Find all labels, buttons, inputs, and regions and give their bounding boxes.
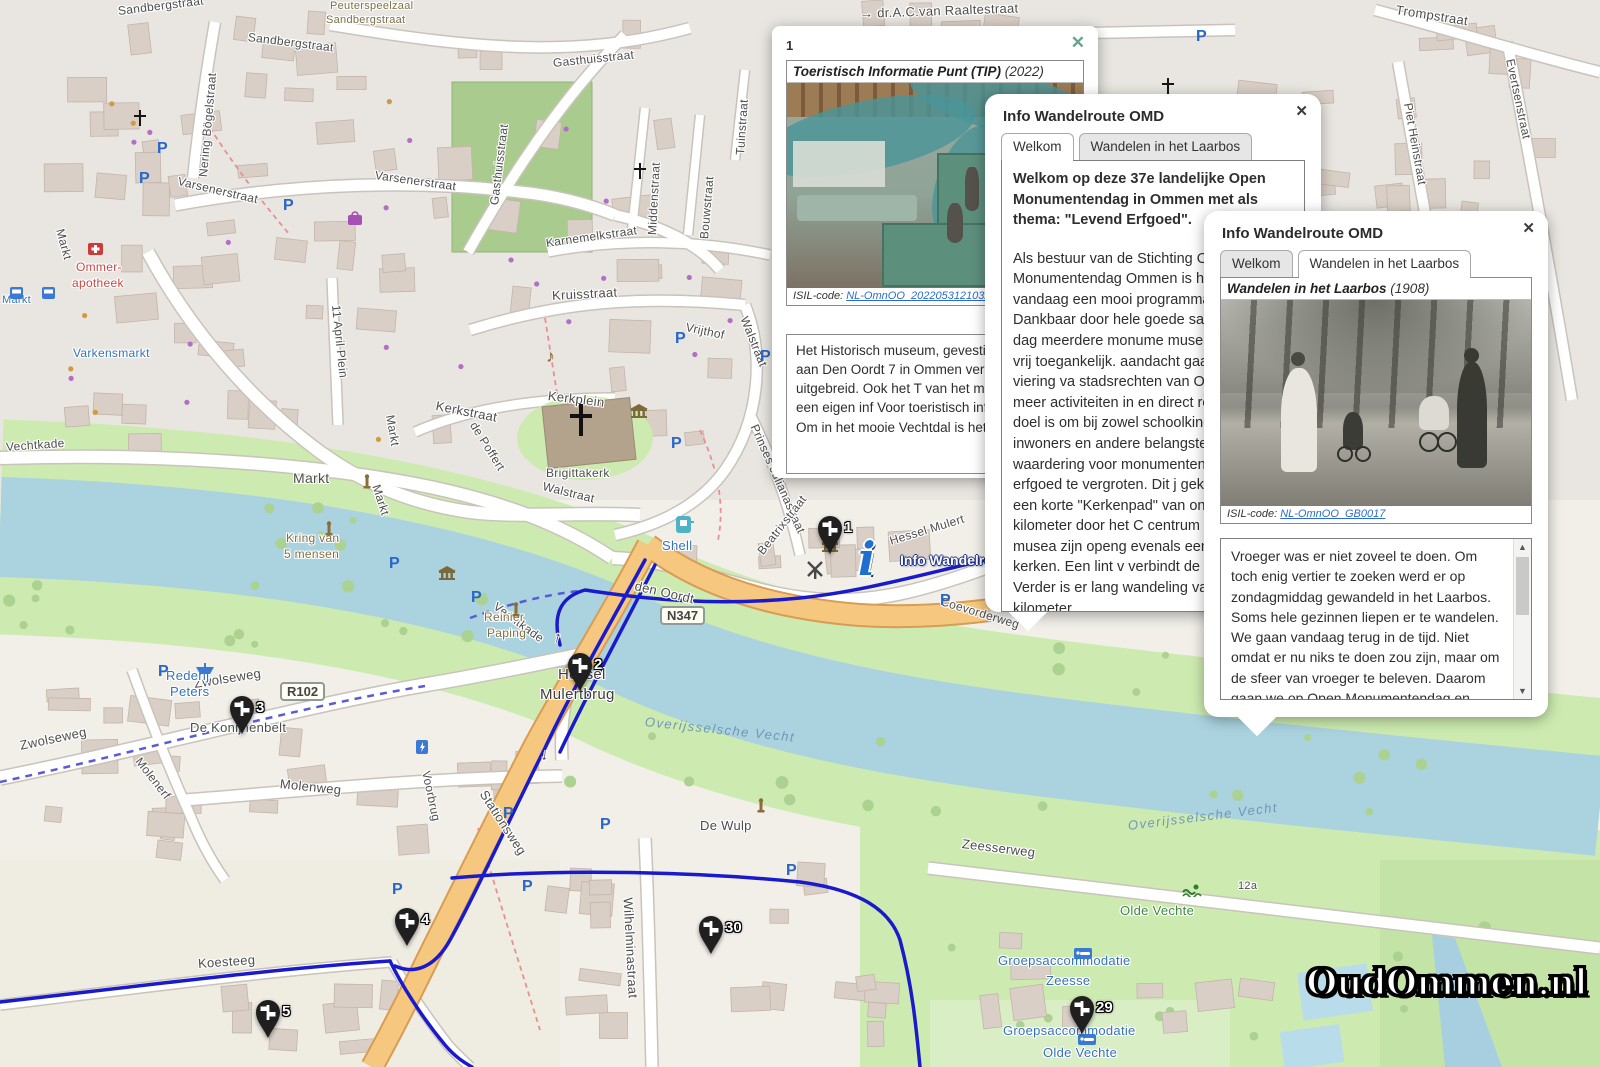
tab-bar: Welkom Wandelen in het Laarbos — [1204, 250, 1548, 277]
tab-welkom[interactable]: Welkom — [1220, 250, 1293, 277]
laarbos-title: Wandelen in het Laarbos — [1227, 281, 1387, 296]
scrollbar[interactable]: ▲ ▼ — [1513, 539, 1531, 699]
tab-wandelen-laarbos[interactable]: Wandelen in het Laarbos — [1079, 133, 1253, 160]
close-icon[interactable]: ✕ — [1522, 221, 1535, 236]
laarbos-card: Wandelen in het Laarbos (1908) ISIL-code… — [1220, 277, 1532, 524]
info-route-icon[interactable]: i — [858, 536, 875, 582]
popup-index-label: 1 — [786, 38, 793, 53]
oudommen-logo: OudOmmen.nl — [1306, 962, 1587, 1004]
isil-link[interactable]: NL-OmnOO_GB0017 — [1280, 508, 1385, 520]
laarbos-content: Vroeger was er niet zoveel te doen. Om t… — [1220, 538, 1532, 700]
tip-year: (2022) — [1005, 64, 1044, 79]
popup-wandelroute-laarbos: ✕ Info Wandelroute OMD Welkom Wandelen i… — [1204, 211, 1548, 717]
close-icon[interactable]: ✕ — [1071, 34, 1085, 51]
isil-label: ISIL-code: — [793, 290, 843, 302]
laarbos-card-title: Wandelen in het Laarbos (1908) — [1221, 278, 1531, 300]
map-application: SandbergstraatSandbergstraatPeuterspeelz… — [0, 0, 1600, 1067]
laarbos-year: (1908) — [1390, 281, 1429, 296]
close-icon[interactable]: ✕ — [1295, 104, 1308, 119]
tip-card-title: Toeristisch Informatie Punt (TIP) (2022) — [787, 61, 1083, 83]
laarbos-body: Vroeger was er niet zoveel te doen. Om t… — [1221, 539, 1514, 699]
isil-label: ISIL-code: — [1227, 508, 1277, 520]
laarbos-isil-row: ISIL-code: NL-OmnOO_GB0017 — [1221, 506, 1531, 523]
scrollbar-thumb[interactable] — [1516, 557, 1529, 615]
popup-title: Info Wandelroute OMD — [1204, 211, 1548, 250]
isil-link[interactable]: NL-OmnOO_20220531210327 — [846, 290, 996, 302]
tip-title: Toeristisch Informatie Punt (TIP) — [793, 64, 1001, 79]
tab-bar: Welkom Wandelen in het Laarbos — [985, 133, 1321, 160]
popup-title: Info Wandelroute OMD — [985, 94, 1321, 133]
tab-wandelen-laarbos[interactable]: Wandelen in het Laarbos — [1298, 250, 1472, 277]
scroll-up-icon[interactable]: ▲ — [1514, 539, 1531, 555]
tab-welkom[interactable]: Welkom — [1001, 133, 1074, 160]
laarbos-photo — [1221, 300, 1531, 506]
scroll-down-icon[interactable]: ▼ — [1514, 683, 1531, 699]
